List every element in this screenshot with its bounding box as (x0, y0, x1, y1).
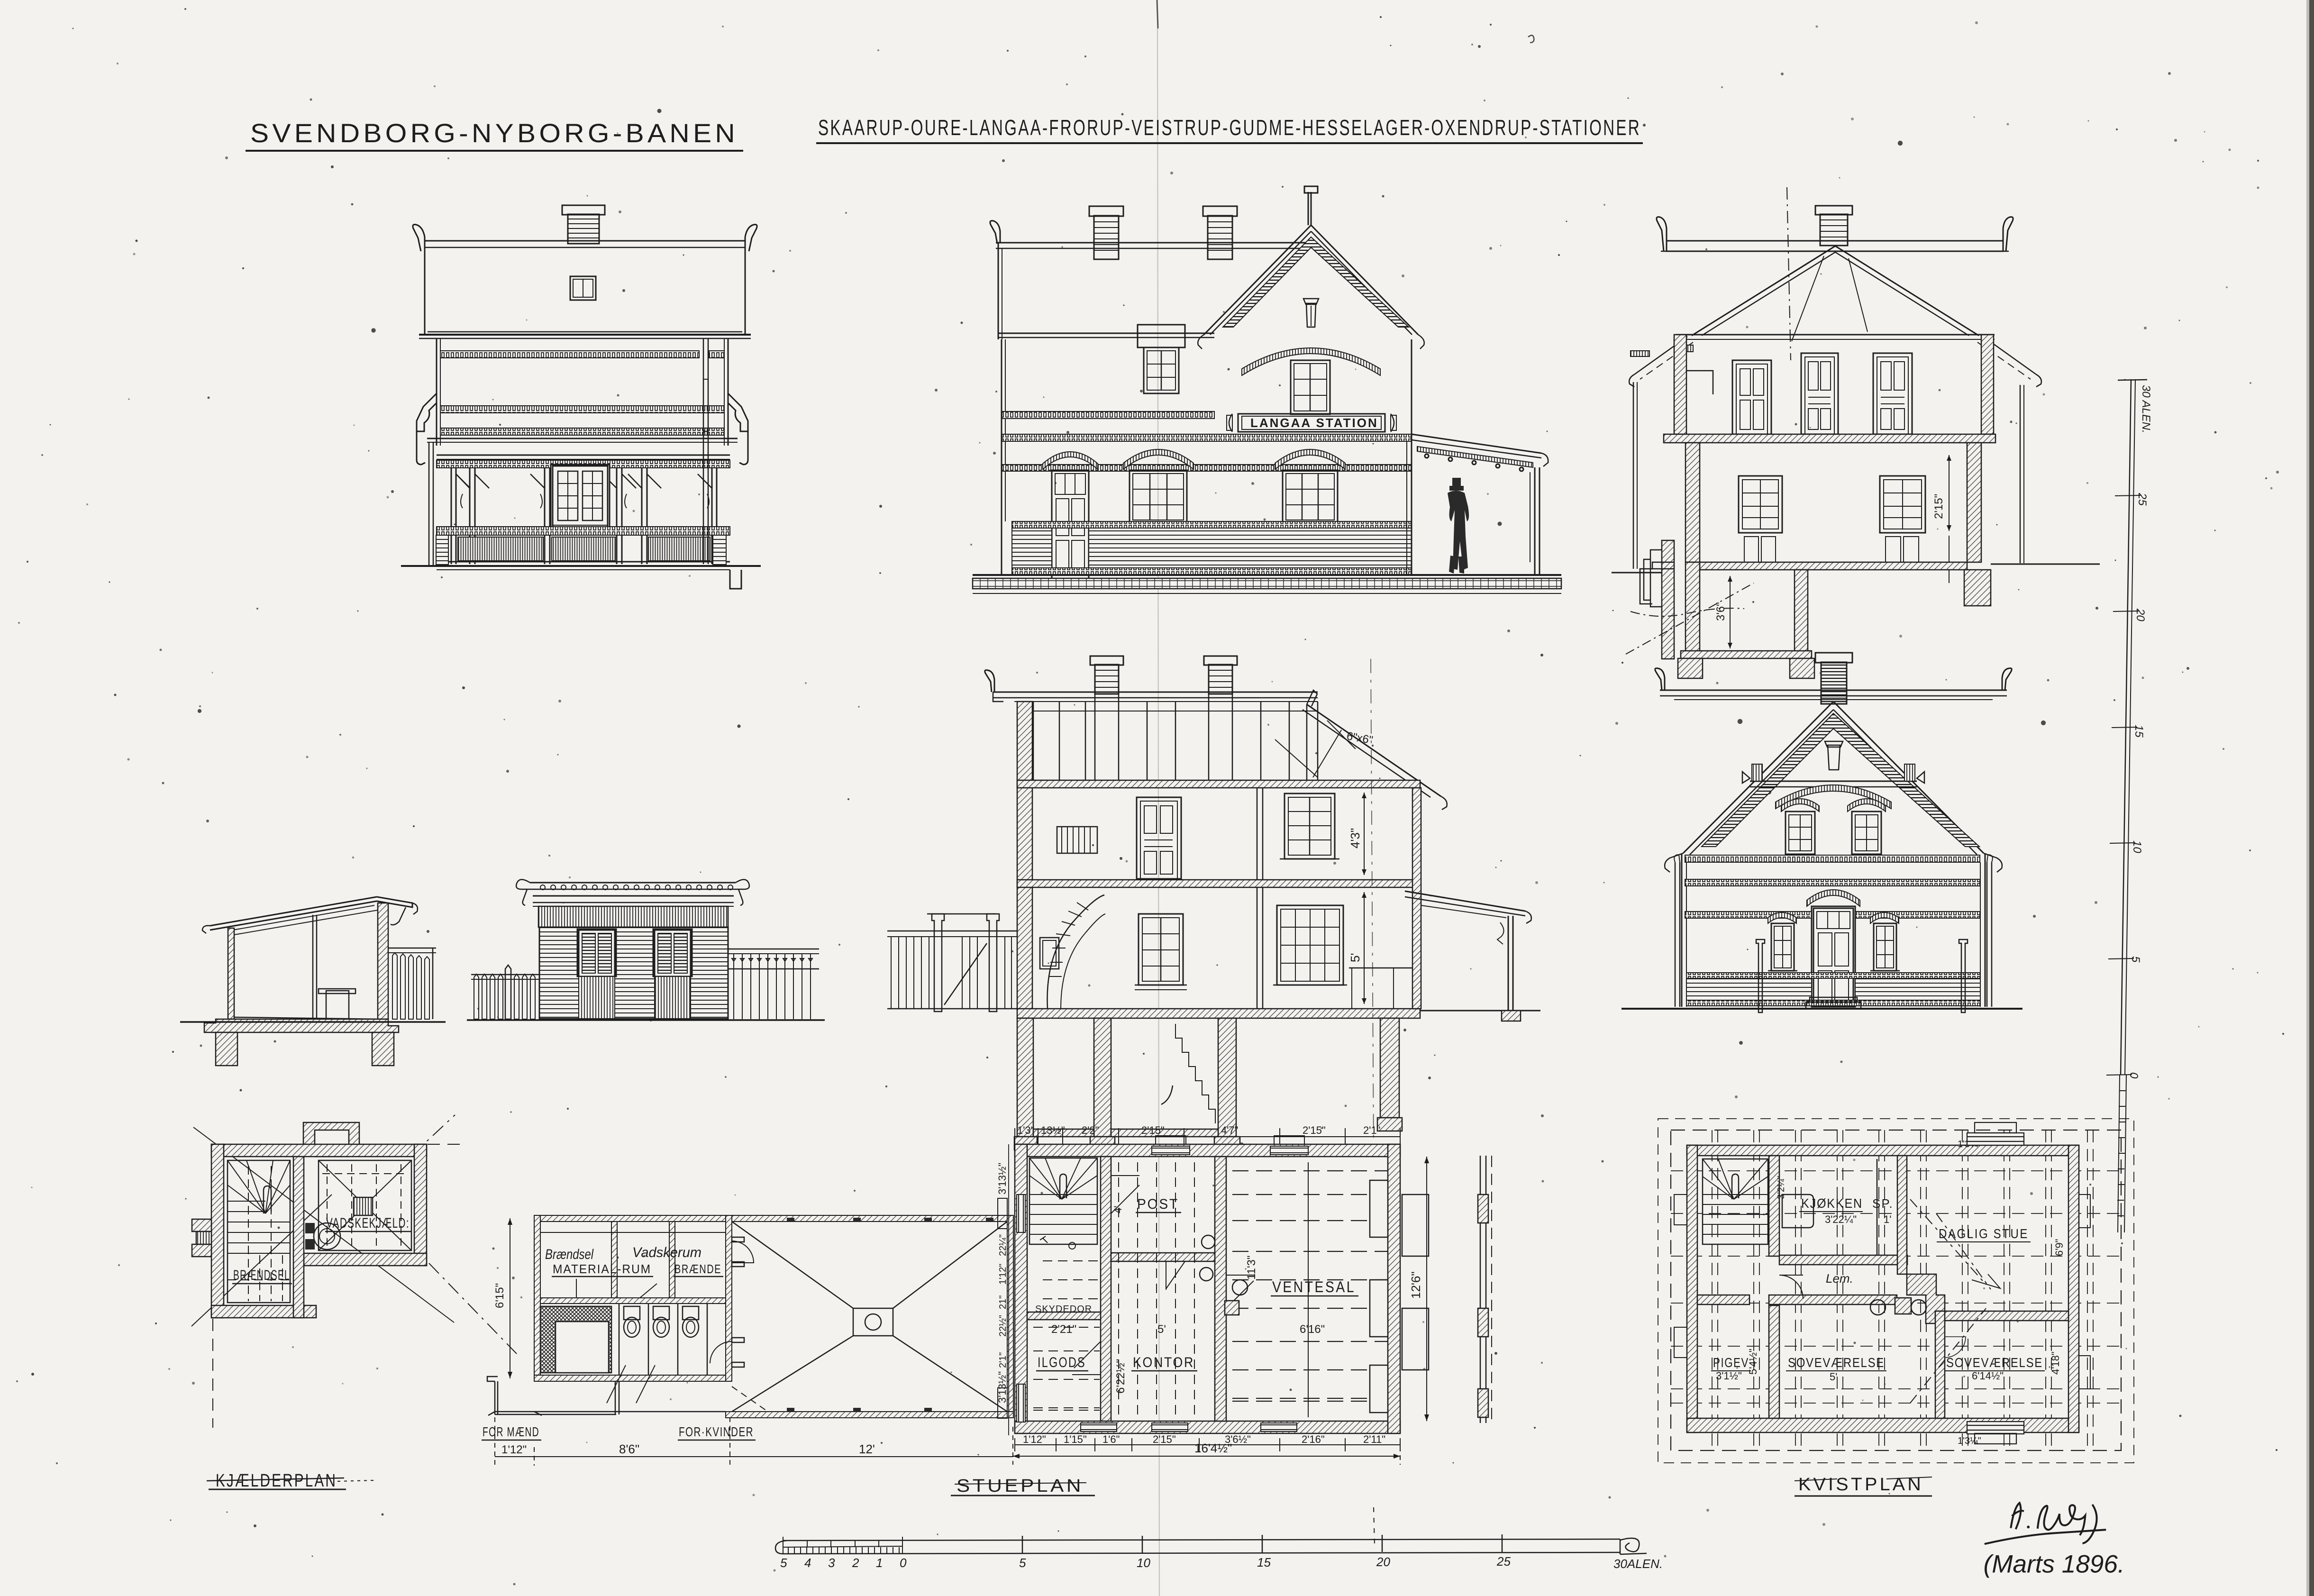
svg-text:30 ALEN.: 30 ALEN. (2140, 385, 2152, 433)
svg-text:2: 2 (852, 1556, 859, 1570)
svg-text:12': 12' (859, 1442, 875, 1456)
svg-text:VENTESAL: VENTESAL (1272, 1278, 1356, 1295)
svg-text:20: 20 (2134, 608, 2147, 621)
svg-text:Vadskerum: Vadskerum (632, 1245, 701, 1260)
svg-text:5: 5 (1019, 1556, 1026, 1570)
svg-text:1'6": 1'6" (1102, 1433, 1120, 1445)
svg-text:3: 3 (828, 1556, 835, 1570)
svg-text:5': 5' (1830, 1371, 1837, 1383)
svg-text:25: 25 (1496, 1554, 1511, 1569)
svg-text:20: 20 (1376, 1555, 1390, 1569)
svg-text:4'18": 4'18" (2050, 1351, 2061, 1375)
svg-text:6'14½": 6'14½" (1972, 1370, 2004, 1382)
svg-text:5': 5' (1157, 1323, 1166, 1336)
svg-text:VADSKEKJÆLD:: VADSKEKJÆLD: (326, 1215, 410, 1231)
svg-text:5: 5 (780, 1556, 787, 1570)
svg-text:KJØKKEN: KJØKKEN (1801, 1196, 1863, 1211)
svg-text:1'12": 1'12" (1023, 1433, 1046, 1445)
svg-text:4: 4 (804, 1556, 811, 1570)
svg-text:10: 10 (2131, 840, 2143, 853)
svg-text:22¼": 22¼" (998, 1234, 1008, 1256)
svg-text:SP.: SP. (1872, 1196, 1894, 1211)
svg-text:2'15": 2'15" (1303, 1124, 1326, 1136)
svg-text:ILGODS: ILGODS (1038, 1355, 1086, 1370)
svg-text:MATERIAL-RUM: MATERIAL-RUM (553, 1262, 651, 1276)
svg-text:POST: POST (1137, 1196, 1179, 1212)
svg-text:12'6": 12'6" (1409, 1271, 1423, 1299)
svg-text:16'4½": 16'4½" (1194, 1441, 1232, 1455)
svg-text:BRÆNDE: BRÆNDE (674, 1262, 721, 1276)
svg-text:1': 1' (1884, 1213, 1891, 1225)
svg-text:6'15": 6'15" (493, 1283, 506, 1308)
svg-text:21": 21" (998, 1295, 1008, 1309)
svg-text:0: 0 (900, 1556, 907, 1570)
svg-text:1'3¼": 1'3¼" (1958, 1436, 1981, 1446)
svg-text:SVENDBORG-NYBORG-BANEN: SVENDBORG-NYBORG-BANEN (250, 118, 738, 148)
svg-text:STUEPLAN: STUEPLAN (957, 1476, 1084, 1496)
svg-text:Lem.: Lem. (1826, 1271, 1853, 1286)
svg-text:3'13½": 3'13½" (996, 1163, 1008, 1195)
svg-text:30ALEN.: 30ALEN. (1613, 1557, 1663, 1571)
svg-text:2'15": 2'15" (1141, 1124, 1165, 1136)
svg-text:2'2": 2'2" (1082, 1124, 1099, 1136)
svg-text:3'22¼": 3'22¼" (1825, 1213, 1857, 1225)
svg-text:10: 10 (1137, 1556, 1150, 1570)
svg-text:1'3": 1'3" (1017, 1124, 1034, 1136)
svg-text:PIGEV: PIGEV (1713, 1355, 1749, 1370)
svg-text:KVISTPLAN: KVISTPLAN (1798, 1475, 1923, 1495)
svg-text:15: 15 (2132, 725, 2145, 738)
svg-text:5': 5' (1348, 953, 1362, 962)
svg-text:6'9": 6'9" (2053, 1239, 2065, 1256)
svg-text:KONTOR: KONTOR (1133, 1355, 1194, 1370)
svg-text:5'4½": 5'4½" (1747, 1349, 1759, 1375)
svg-text:1'12": 1'12" (998, 1264, 1008, 1285)
svg-text:3'1½": 3'1½" (1716, 1370, 1742, 1382)
svg-text:8'6": 8'6" (619, 1442, 639, 1456)
svg-text:2'1": 2'1" (1363, 1124, 1380, 1136)
svg-text:2'21": 2'21" (1051, 1323, 1076, 1336)
svg-text:2'1": 2'1" (998, 1352, 1008, 1368)
svg-text:2'15": 2'15" (1153, 1433, 1176, 1445)
svg-text:1'12": 1'12" (501, 1443, 527, 1456)
svg-text:5: 5 (2129, 956, 2142, 963)
svg-text:2'11": 2'11" (1363, 1433, 1385, 1445)
svg-text:4'3": 4'3" (1348, 828, 1362, 848)
svg-text:2'16": 2'16" (1302, 1433, 1325, 1445)
svg-text:4': 4' (1112, 1206, 1124, 1213)
svg-text:SKYDEDOR: SKYDEDOR (1035, 1304, 1092, 1314)
svg-text:0: 0 (2127, 1072, 2140, 1079)
svg-text:1: 1 (876, 1556, 883, 1570)
svg-text:3'6": 3'6" (1714, 602, 1727, 621)
svg-text:2'15": 2'15" (1932, 494, 1945, 519)
svg-text:SOVEVÆRELSE: SOVEVÆRELSE (1946, 1355, 2043, 1370)
svg-text:22½": 22½" (998, 1315, 1008, 1337)
svg-text:DAGLIG STUE: DAGLIG STUE (1939, 1226, 2029, 1241)
svg-text:25: 25 (2136, 492, 2149, 506)
svg-text:4'7": 4'7" (1221, 1124, 1238, 1136)
svg-text:LANGAA STATION: LANGAA STATION (1250, 416, 1378, 430)
svg-text:Brændsel: Brændsel (545, 1247, 594, 1262)
svg-text:SOVEVÆRELSE: SOVEVÆRELSE (1788, 1355, 1885, 1370)
svg-text:(Marts 1896.: (Marts 1896. (1984, 1550, 2125, 1578)
svg-text:13½": 13½" (1041, 1124, 1065, 1136)
svg-text:3'13½": 3'13½" (996, 1371, 1008, 1403)
svg-text:SKAARUP-OURE-LANGAA-FRORUP-VEI: SKAARUP-OURE-LANGAA-FRORUP-VEISTRUP-GUDM… (818, 115, 1641, 140)
svg-text:BRÆNDSEL: BRÆNDSEL (233, 1268, 290, 1283)
svg-text:FOR MÆND: FOR MÆND (483, 1424, 539, 1439)
svg-text:3'2¼": 3'2¼" (1776, 1176, 1786, 1199)
svg-text:FOR·KVINDER: FOR·KVINDER (679, 1424, 754, 1439)
svg-text:11'3": 11'3" (1245, 1256, 1258, 1280)
svg-text:15: 15 (1257, 1555, 1271, 1569)
svg-text:6'22½": 6'22½" (1114, 1359, 1127, 1394)
svg-text:1'15": 1'15" (1064, 1433, 1087, 1445)
svg-text:6'16": 6'16" (1300, 1323, 1325, 1336)
